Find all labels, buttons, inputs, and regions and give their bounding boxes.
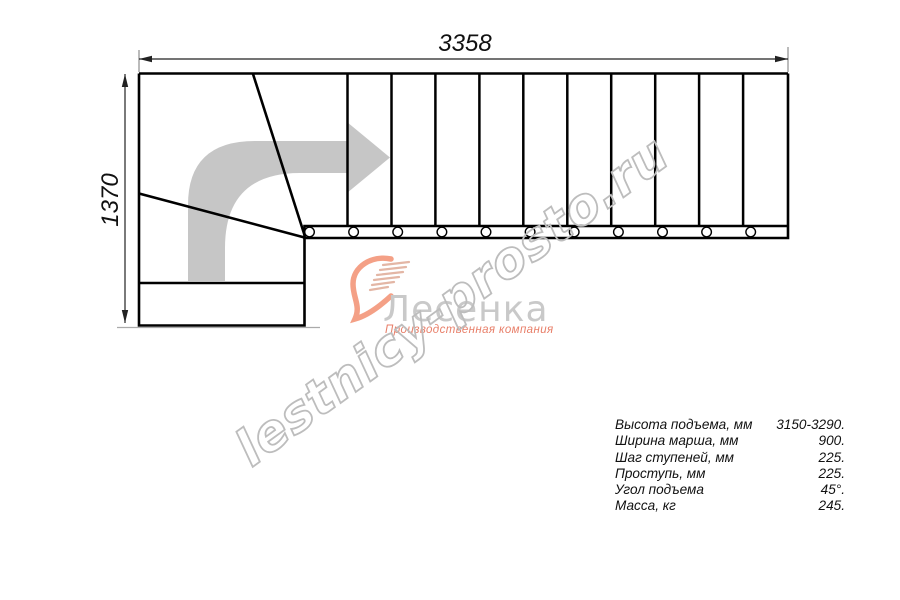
spec-label: Проступь, мм <box>615 466 705 482</box>
top-dimension-label: 3358 <box>400 30 530 58</box>
spec-row: Шаг ступеней, мм 225. <box>615 450 845 466</box>
spec-row: Масса, кг 245. <box>615 498 845 514</box>
spec-value: 900. <box>819 433 845 449</box>
spec-row: Высота подъема, мм 3150-3290. <box>615 417 845 433</box>
spec-row: Угол подъема 45°. <box>615 482 845 498</box>
dimension-arrowhead-up <box>122 74 128 87</box>
spec-label: Шаг ступеней, мм <box>615 450 734 466</box>
spec-label: Угол подъема <box>615 482 704 498</box>
dimension-arrowhead-down <box>122 310 128 323</box>
spec-label: Высота подъема, мм <box>615 417 752 433</box>
spec-table: Высота подъема, мм 3150-3290. Ширина мар… <box>615 417 845 515</box>
left-dimension-label: 1370 <box>97 170 125 230</box>
spec-value: 245. <box>819 498 845 514</box>
spec-label: Ширина марша, мм <box>615 433 739 449</box>
spec-value: 45°. <box>821 482 845 498</box>
spec-value: 3150-3290. <box>776 417 845 433</box>
spec-value: 225. <box>819 466 845 482</box>
spec-label: Масса, кг <box>615 498 676 514</box>
dimension-arrowhead-left <box>139 56 152 62</box>
dimension-arrowhead-right <box>775 56 788 62</box>
spec-row: Проступь, мм 225. <box>615 466 845 482</box>
staircase-drawing-page: 3358 1370 Лесенка Производственная компа… <box>0 0 900 600</box>
spec-value: 225. <box>819 450 845 466</box>
spec-row: Ширина марша, мм 900. <box>615 433 845 449</box>
